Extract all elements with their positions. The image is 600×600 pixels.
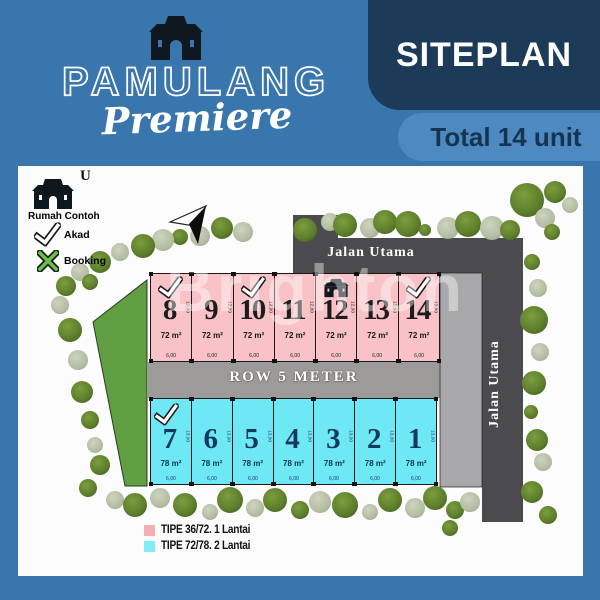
shrub-icon	[152, 229, 174, 251]
lot-width: 6,00	[358, 476, 392, 481]
unit-cell-11: 1112,0072 m²6,00	[275, 274, 316, 361]
lot-depth: 12,00	[268, 301, 273, 313]
tree-icon	[524, 405, 538, 419]
shrub-icon	[106, 491, 124, 509]
tree-icon	[378, 488, 402, 512]
unit-number: 11	[275, 296, 311, 325]
unit-row-tipe-36-72: 812,0072 m²6,00912,0072 m²6,001012,0072 …	[150, 273, 440, 362]
akad-label: Akad	[64, 229, 90, 241]
tree-icon	[520, 306, 548, 334]
tree-icon	[263, 488, 287, 512]
tree-icon	[522, 371, 546, 395]
lot-depth: 12,00	[185, 301, 190, 313]
lot-width: 6,00	[278, 353, 312, 358]
brand-logo: PAMULANG Premiere	[22, 8, 352, 158]
lot-area: 72 m²	[357, 331, 397, 340]
lot-depth: 12,00	[392, 301, 397, 313]
lot-width: 6,00	[154, 353, 188, 358]
total-units-label: Total 14 unit	[430, 122, 581, 153]
unit-cell-1: 113,0078 m²6,00	[396, 399, 436, 484]
side-lane	[440, 273, 482, 487]
road-label-jalan-utama-top: Jalan Utama	[301, 245, 441, 261]
tree-icon	[79, 479, 97, 497]
lot-depth: 12,00	[309, 301, 314, 313]
tree-icon	[56, 276, 76, 296]
tree-icon	[123, 493, 147, 517]
shrub-icon	[233, 222, 253, 242]
unit-number: 6	[192, 425, 228, 454]
tree-icon	[521, 481, 543, 503]
unit-number: 2	[355, 425, 391, 454]
tree-icon	[333, 213, 357, 237]
lot-area: 78 m²	[274, 459, 314, 468]
lot-width: 6,00	[317, 476, 351, 481]
lot-depth: 12,00	[350, 301, 355, 313]
siteplan-canvas: Rumah Contoh Akad Booking U Jalan Utama …	[18, 166, 583, 576]
unit-number: 5	[233, 425, 269, 454]
tree-icon	[524, 254, 540, 270]
lot-depth: 13,00	[226, 430, 231, 442]
unit-number: 10	[234, 296, 270, 325]
tree-icon	[373, 210, 397, 234]
unit-number: 9	[192, 296, 228, 325]
unit-cell-12: 1212,0072 m²6,00	[316, 274, 357, 361]
lot-depth: 12,00	[433, 301, 438, 313]
unit-number: 4	[274, 425, 310, 454]
tree-icon	[131, 234, 155, 258]
tree-icon	[539, 506, 557, 524]
shrub-icon	[529, 279, 547, 297]
lot-depth: 13,00	[430, 430, 435, 442]
tree-icon	[423, 486, 447, 510]
tree-icon	[211, 217, 233, 239]
pink-type-swatch	[144, 525, 155, 536]
unit-row-tipe-72-78: 713,0078 m²6,00613,0078 m²6,00513,0078 m…	[150, 398, 437, 485]
unit-cell-10: 1012,0072 m²6,00	[234, 274, 275, 361]
lot-area: 78 m²	[233, 459, 273, 468]
lot-width: 6,00	[277, 476, 311, 481]
tree-icon	[173, 493, 197, 517]
shrub-icon	[68, 350, 88, 370]
unit-number: 3	[314, 425, 350, 454]
lot-area: 72 m²	[316, 331, 356, 340]
unit-number: 14	[399, 296, 435, 325]
cyan-type-swatch	[144, 541, 155, 552]
tree-icon	[90, 455, 110, 475]
tree-icon	[526, 429, 548, 451]
road-label-row-5-meter: ROW 5 METER	[148, 369, 440, 386]
lot-depth: 13,00	[348, 430, 353, 442]
shrub-icon	[150, 488, 170, 508]
lot-area: 72 m²	[192, 331, 232, 340]
road-label-jalan-utama-right: Jalan Utama	[487, 324, 507, 444]
lot-width: 6,00	[319, 353, 353, 358]
lot-depth: 13,00	[308, 430, 313, 442]
tree-icon	[291, 501, 309, 519]
unit-number: 12	[316, 296, 352, 325]
unit-cell-7: 713,0078 m²6,00	[151, 399, 192, 484]
tree-icon	[58, 318, 82, 342]
tree-icon	[544, 181, 566, 203]
tree-icon	[395, 211, 421, 237]
unit-cell-6: 613,0078 m²6,00	[192, 399, 233, 484]
lot-width: 6,00	[399, 476, 433, 481]
type-2-label: TIPE 72/78. 2 Lantai	[161, 540, 250, 552]
lot-depth: 12,00	[227, 301, 232, 313]
type-legend-row-2: TIPE 72/78. 2 Lantai	[144, 540, 262, 552]
type-1-label: TIPE 36/72. 1 Lantai	[161, 524, 250, 536]
shrub-icon	[202, 504, 218, 520]
booking-label: Booking	[64, 255, 106, 267]
unit-cell-9: 912,0072 m²6,00	[192, 274, 233, 361]
lot-area: 72 m²	[234, 331, 274, 340]
tree-icon	[442, 520, 458, 536]
lot-width: 6,00	[195, 353, 229, 358]
tree-icon	[81, 411, 99, 429]
unit-cell-5: 513,0078 m²6,00	[233, 399, 274, 484]
lot-depth: 13,00	[389, 430, 394, 442]
type-legend-row-1: TIPE 36/72. 1 Lantai	[144, 524, 262, 536]
lot-area: 78 m²	[396, 459, 436, 468]
tree-icon	[500, 220, 520, 240]
lot-area: 78 m²	[151, 459, 191, 468]
lot-area: 78 m²	[314, 459, 354, 468]
lot-width: 6,00	[195, 476, 229, 481]
tree-icon	[293, 218, 317, 242]
brand-house-icon	[144, 14, 208, 62]
siteplan-flyer: { "brand": { "name": "PAMULANG", "sub": …	[0, 0, 600, 600]
type-legend: TIPE 36/72. 1 Lantai TIPE 72/78. 2 Lanta…	[144, 524, 262, 556]
tree-icon	[217, 487, 243, 513]
show-home-label: Rumah Contoh	[28, 211, 138, 222]
shrub-icon	[460, 492, 480, 512]
show-home-icon	[30, 178, 76, 210]
shrub-icon	[362, 504, 378, 520]
tree-icon	[419, 224, 431, 236]
shrub-icon	[309, 491, 331, 513]
unit-cell-14: 1412,0072 m²6,00	[399, 274, 439, 361]
unit-cell-13: 1312,0072 m²6,00	[357, 274, 398, 361]
lot-width: 6,00	[402, 353, 436, 358]
lot-depth: 13,00	[267, 430, 272, 442]
lot-area: 72 m²	[399, 331, 439, 340]
lot-depth: 13,00	[185, 430, 190, 442]
shrub-icon	[246, 499, 264, 517]
shrub-icon	[562, 197, 578, 213]
tree-icon	[172, 229, 188, 245]
lot-width: 6,00	[360, 353, 394, 358]
tree-icon	[544, 224, 560, 240]
lot-area: 72 m²	[275, 331, 315, 340]
siteplan-title-box: SITEPLAN	[368, 0, 600, 110]
unit-cell-4: 413,0078 m²6,00	[274, 399, 315, 484]
tree-icon	[332, 492, 358, 518]
compass-north-label: U	[80, 168, 91, 185]
unit-number: 8	[151, 296, 187, 325]
shrub-icon	[87, 437, 103, 453]
tree-icon	[82, 274, 98, 290]
lot-area: 78 m²	[355, 459, 395, 468]
shrub-icon	[51, 296, 69, 314]
shrub-icon	[111, 243, 129, 261]
unit-cell-3: 313,0078 m²6,00	[314, 399, 355, 484]
unit-number: 1	[396, 425, 432, 454]
lot-width: 6,00	[154, 476, 188, 481]
booking-x-icon	[37, 250, 59, 272]
unit-number: 7	[151, 425, 187, 454]
unit-number: 13	[357, 296, 393, 325]
lot-area: 72 m²	[151, 331, 191, 340]
total-units-box: Total 14 unit	[398, 113, 600, 161]
brand-subname: Premiere	[81, 92, 312, 144]
akad-check-icon	[33, 222, 64, 248]
unit-cell-8: 812,0072 m²6,00	[151, 274, 192, 361]
shrub-icon	[531, 343, 549, 361]
tree-icon	[71, 381, 93, 403]
lot-width: 6,00	[237, 353, 271, 358]
shrub-icon	[405, 498, 425, 518]
tree-icon	[455, 211, 481, 237]
shrub-icon	[534, 453, 552, 471]
unit-cell-2: 213,0078 m²6,00	[355, 399, 396, 484]
page-title: SITEPLAN	[396, 36, 572, 75]
lot-area: 78 m²	[192, 459, 232, 468]
lot-width: 6,00	[236, 476, 270, 481]
